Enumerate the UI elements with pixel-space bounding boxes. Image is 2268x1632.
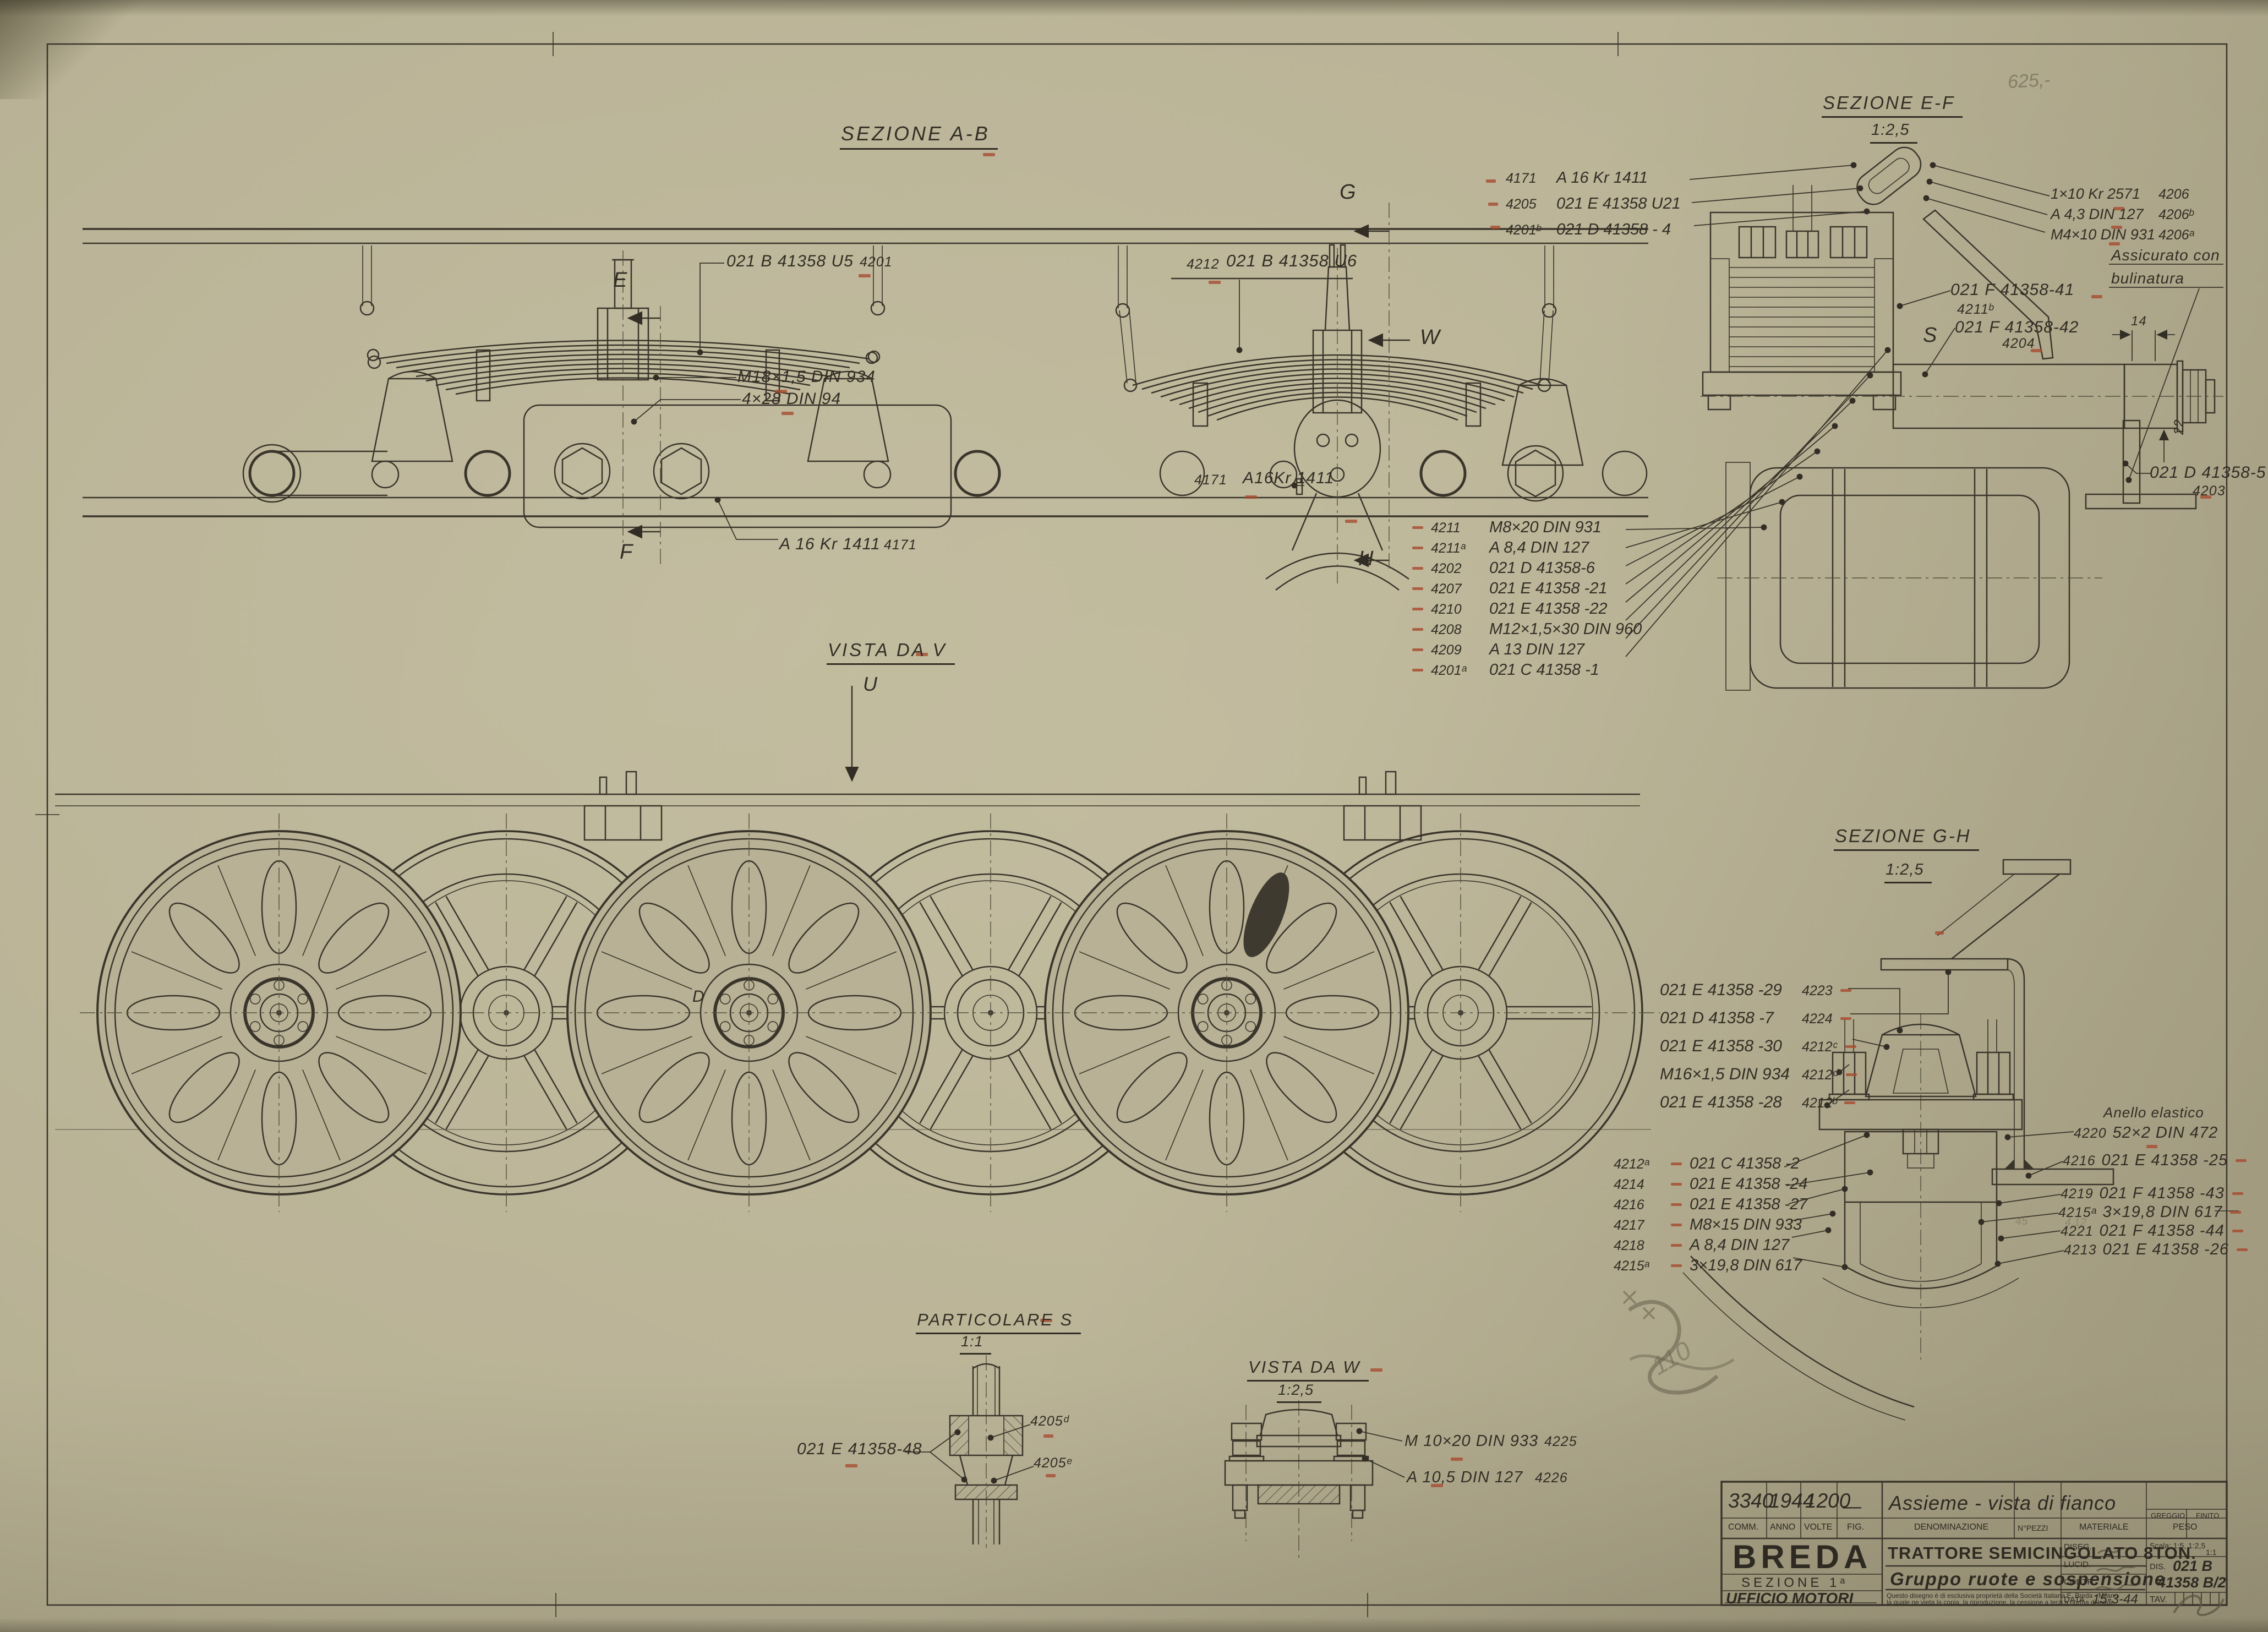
list-item: 021 E 41358 -304212ᶜ [1660,1034,1857,1062]
tb-volte: VOLTE [1804,1522,1832,1532]
gh-bottom-parts-list: 4212ᵃ021 C 41358 -2 4214021 E 41358 -24 … [1614,1155,1807,1277]
rail-bracket-2 [1344,772,1421,840]
callout-axle-part: A 16 Kr 1411 [779,535,881,554]
note-assicurato-2: bulinatura [2111,270,2184,287]
tb-peso: PESO [2173,1522,2197,1532]
list-item: 4211ᵃA 8,4 DIN 127 [1412,539,1642,559]
callout-spring1-part: 021 B 41358 U5 [726,252,854,271]
ef-right-parts-list: 1×10 Kr 25714206 A 4,3 DIN 1274206ᵇ M4×1… [2051,185,2194,246]
tb-comm-value: 3340 [1728,1489,1773,1513]
pencil-faint-a: 45 [2015,1215,2027,1228]
tb-dis-value2: 41358 B/2 [2157,1574,2226,1591]
list-item: 021 E 41358 -294223 [1660,978,1857,1006]
callout-ef-42-ref: 4204 [2002,336,2035,352]
list-item: 4210021 E 41358 -22 [1412,600,1642,620]
callout-nut: M18×1,5 DIN 934 [737,368,876,386]
list-item: 4221 021 F 41358 -44 [2061,1222,2243,1240]
title-vista-v: VISTA DA V [827,640,955,665]
dim-22: 22 [2172,419,2187,435]
list-item: 4207021 E 41358 -21 [1412,580,1642,600]
tb-materiale: MATERIALE [2079,1522,2129,1532]
callout-spring1-ref: 4201 [860,254,893,270]
scale-gh: 1:2,5 [1884,861,1932,883]
pencil-price-note: 625,- [2007,69,2051,93]
ef-dim-14 [2112,330,2175,361]
list-item: 4214021 E 41358 -24 [1614,1175,1807,1196]
callout-ef-41-part: 021 F 41358-41 [1950,281,2074,299]
list-item: 021 E 41358 -284212ᵇ [1660,1090,1857,1118]
list-item: 4218A 8,4 DIN 127 [1614,1236,1807,1257]
tb-contr: CONTR. [2064,1578,2096,1587]
gh-frame-flange [2003,860,2070,874]
ef-spring-clamp [1739,227,1867,258]
list-item: 4216021 E 41358 -27 [1614,1196,1807,1216]
callout-ps-part: 021 E 41358-48 [797,1440,922,1459]
particolare-s-drawing [905,1355,1034,1548]
rail-bracket-1 [584,772,662,840]
tb-fig: FIG. [1847,1522,1864,1532]
tb-company: BREDA [1733,1538,1872,1576]
callout-ps-ref-e: 4205ᵉ [1034,1455,1072,1471]
vista-v-drawing [55,686,1660,1212]
view-letter-h: H [1358,547,1374,571]
list-item: A 10,5 DIN 127 4226 [1407,1469,1568,1487]
ef-top-parts-list: 4171A 16 Kr 1411 4205021 E 41358 U21 420… [1506,166,1681,244]
list-item: 4202021 D 41358-6 [1412,559,1642,580]
tb-sezione: SEZIONE 1ᵃ [1741,1575,1848,1591]
linework [0,0,2268,1632]
list-item: 4213 021 E 41358 -26 [2064,1241,2248,1259]
tb-data-value: 15-3-44 [2092,1592,2138,1607]
list-item: M16×1,5 DIN 9344212ᵈ [1660,1062,1857,1090]
list-item: 4216 021 E 41358 -25 [2063,1151,2247,1170]
view-letter-e: E [613,269,627,292]
tb-scala2: 1:1 [2206,1548,2216,1557]
list-item: 021 D 41358 -74224 [1660,1006,1857,1034]
gh-top-parts-list: 021 E 41358 -294223 021 D 41358 -74224 0… [1660,978,1857,1118]
scale-vw: 1:2,5 [1277,1382,1321,1403]
tb-ufficio: UFFICIO MOTORI [1726,1590,1853,1607]
tb-dis-value1: 021 B [2173,1558,2212,1575]
tb-denominazione: DENOMINAZIONE [1914,1522,1988,1532]
tb-fig-value: — [1843,1496,1861,1518]
tb-comm: COMM. [1728,1522,1758,1532]
tb-scala: Scala: 1:5, 1:2,5 [2150,1541,2205,1550]
list-item: 4208M12×1,5×30 DIN 960 [1412,620,1642,641]
list-item: 4209A 13 DIN 127 [1412,641,1642,661]
list-item: 4215ᵃ3×19,8 DIN 617 [1614,1257,1807,1277]
callout-spring2-ref: 4212 [1187,256,1220,272]
scale-ef: 1:2,5 [1870,121,1917,144]
title-particolare-s: PARTICOLARE S [916,1310,1081,1334]
list-item: M 10×20 DIN 933 4225 [1404,1432,1577,1450]
list-item: 4219 021 F 41358 -43 [2061,1185,2243,1203]
list-item: 4171A 16 Kr 1411 [1506,166,1681,192]
ef-bottom-parts-list: 4211M8×20 DIN 931 4211ᵃA 8,4 DIN 127 420… [1412,518,1642,681]
title-sezione-gh: SEZIONE G-H [1834,826,1979,851]
ef-shackle-link [1851,141,1927,210]
ef-spring-pack [1703,212,1901,410]
tb-diseg: DISEG. [2064,1542,2092,1552]
detail-letter-s: S [1923,324,1937,347]
scale-ps: 1:1 [960,1333,991,1355]
callout-pin2-ref: 4171 [1194,472,1227,488]
callout-spring2-part: 021 B 41358 U6 [1226,251,1357,271]
callout-ef-41-ref: 4211ᵇ [1957,302,1994,318]
list-item: 4212ᵃ021 C 41358 -2 [1614,1155,1807,1175]
tb-denominazione-value: Assieme - vista di fianco [1889,1492,2116,1515]
list-item: M4×10 DIN 9314206ᵃ [2051,226,2194,246]
callout-axle-ref: 4171 [884,537,917,553]
tb-dis: DIS. [2150,1562,2166,1571]
callout-ef-42-part: 021 F 41358-42 [1955,318,2079,337]
callout-ef-5-ref: 4203 [2193,483,2226,499]
tb-greggio: GREGGIO [2151,1511,2185,1520]
gh-stud-nuts [1829,1019,2013,1100]
list-item: 4201ᵇ021 D 41358 - 4 [1506,218,1681,244]
tb-finito: FINITO [2196,1511,2219,1520]
pencil-faint-b: 4.12 [2065,1216,2086,1229]
title-sezione-ab: SEZIONE A-B [840,122,998,150]
view-letter-g: G [1340,181,1357,204]
callout-ef-5-part: 021 D 41358-5 [2150,463,2266,482]
vista-w-drawing [1225,1400,1404,1558]
frame-bolt-row [243,444,1647,502]
tb-lucid: LUCID. [2064,1560,2091,1569]
tb-anno: ANNO [1770,1522,1795,1532]
list-item: 1×10 Kr 25714206 [2051,185,2194,205]
tb-line2: Gruppo ruote e sospensione [1890,1569,2166,1590]
note-anello-elastico: Anello elastico [2103,1104,2204,1121]
callout-ps-ref-d: 4205ᵈ [1030,1413,1069,1429]
list-item: 4220 52×2 DIN 472 [2074,1124,2218,1142]
view-letter-w: W [1420,326,1440,350]
dim-14: 14 [2131,314,2147,329]
callout-pin2-part: A16Kr 1411 [1243,469,1334,488]
list-item: 4211M8×20 DIN 931 [1412,518,1642,539]
tb-tav: TAV. [2150,1595,2167,1605]
callout-cotter: 4×28 DIN 94 [742,390,841,408]
title-vista-w: VISTA DA W [1247,1357,1369,1382]
list-item: 4205021 E 41358 U21 [1506,192,1681,218]
view-letter-u: U [863,673,878,696]
sezione-gh-drawing [1683,860,2113,1420]
gh-foot-plate [1992,1169,2113,1185]
drawing-sheet: SEZIONE A-B SEZIONE E-F 1:2,5 VISTA DA V… [0,0,2268,1632]
ef-hub-drum [1717,462,2102,690]
list-item: 4201ᵃ021 C 41358 -1 [1412,661,1642,681]
sheet-border [35,32,2239,1617]
view-letter-f: F [620,541,633,564]
wheel-letter-d: D [692,987,705,1006]
note-assicurato-1: Assicurato con [2111,247,2220,264]
title-sezione-ef: SEZIONE E-F [1822,92,1963,118]
list-item: A 4,3 DIN 1274206ᵇ [2051,205,2194,226]
tb-npezzi: N°PEZZI [2018,1524,2048,1532]
tb-data: DATA [2064,1595,2085,1604]
list-item: 4217M8×15 DIN 933 [1614,1216,1807,1236]
